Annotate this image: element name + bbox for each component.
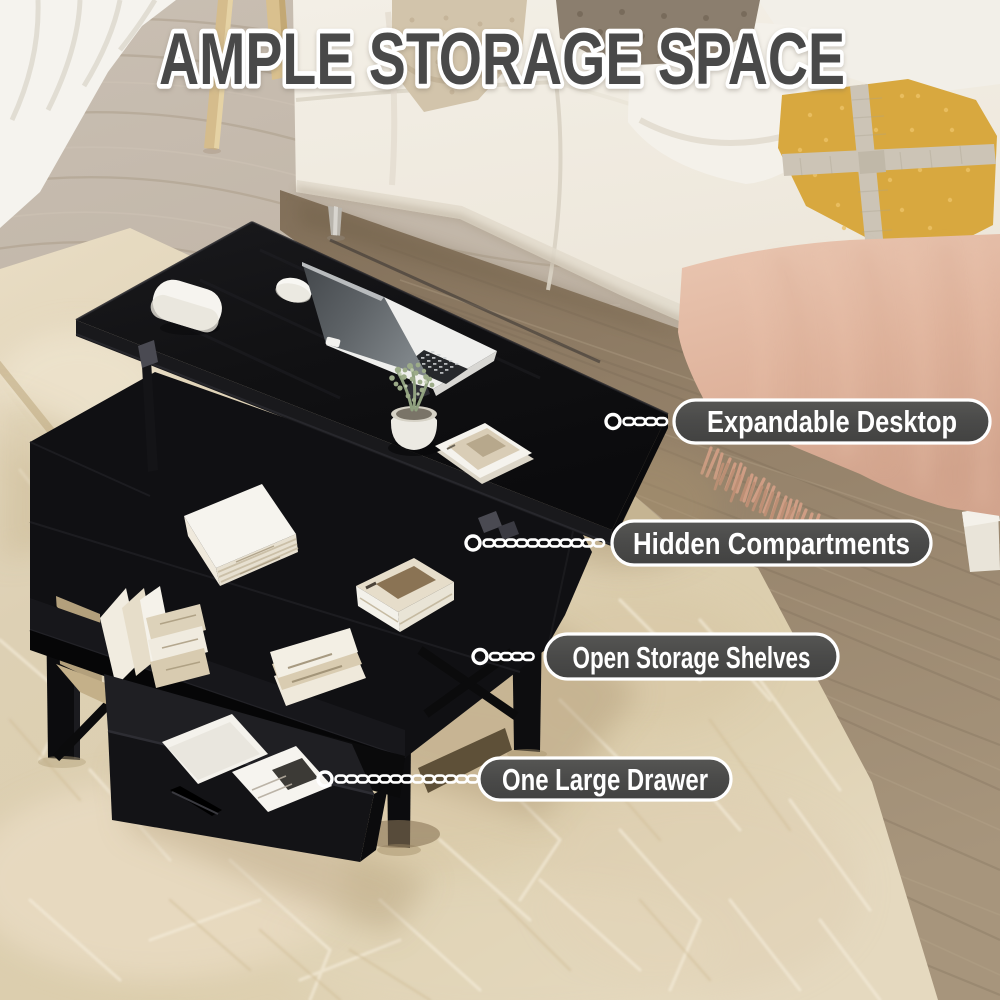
- svg-text:Expandable Desktop: Expandable Desktop: [707, 404, 957, 439]
- svg-text:Open Storage Shelves: Open Storage Shelves: [573, 640, 811, 675]
- svg-text:One Large Drawer: One Large Drawer: [502, 762, 708, 797]
- svg-text:Hidden Compartments: Hidden Compartments: [633, 526, 910, 561]
- svg-text:AMPLE STORAGE SPACE: AMPLE STORAGE SPACE: [159, 19, 845, 100]
